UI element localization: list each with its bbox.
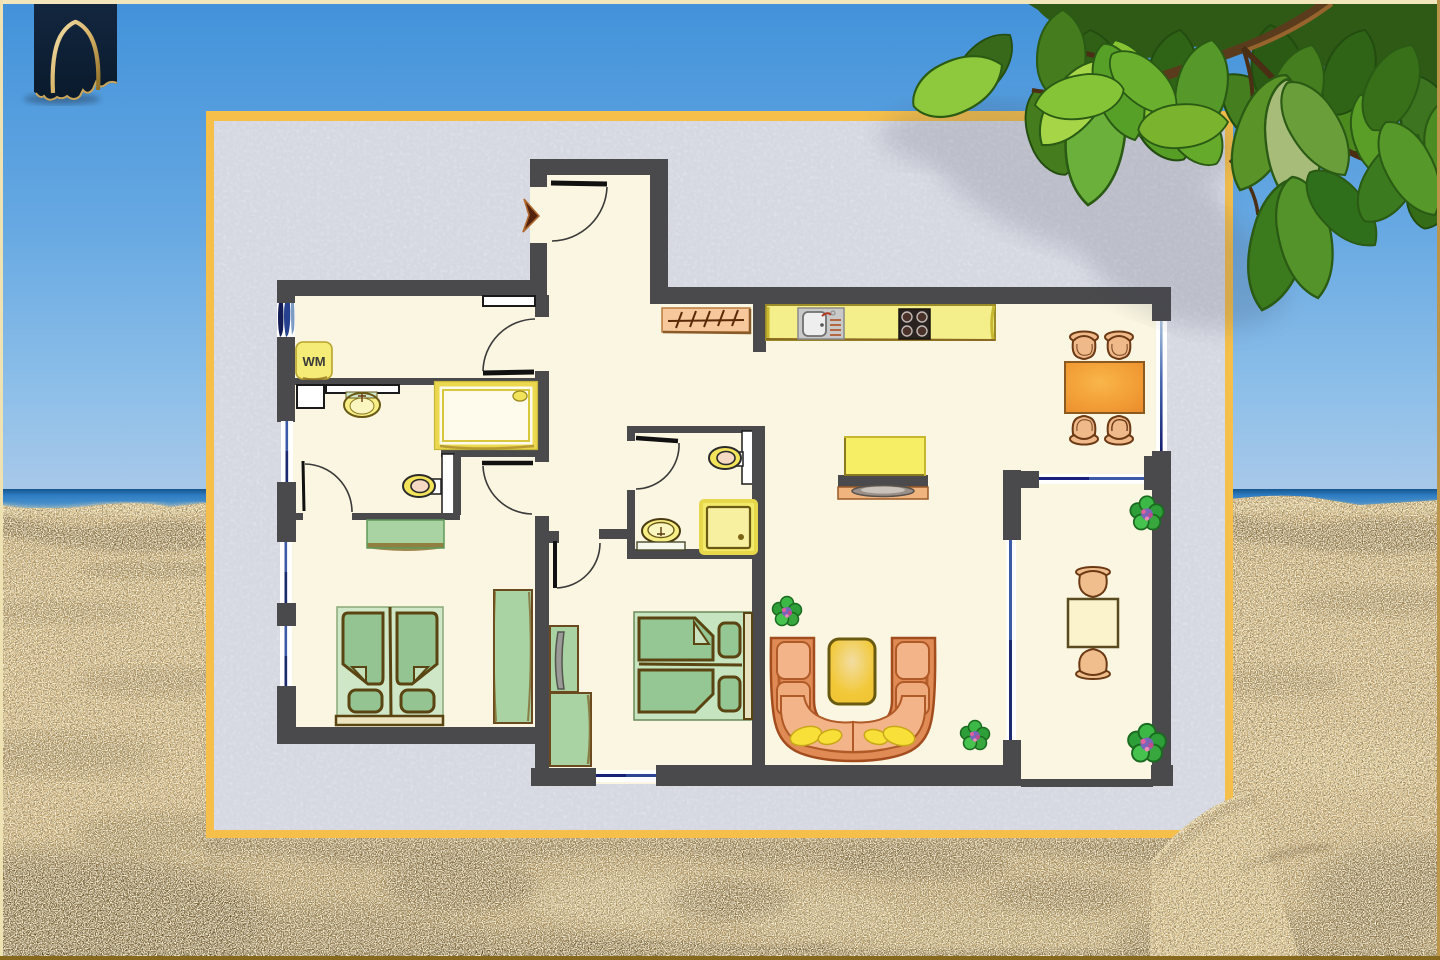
svg-text:WM: WM	[302, 354, 325, 369]
